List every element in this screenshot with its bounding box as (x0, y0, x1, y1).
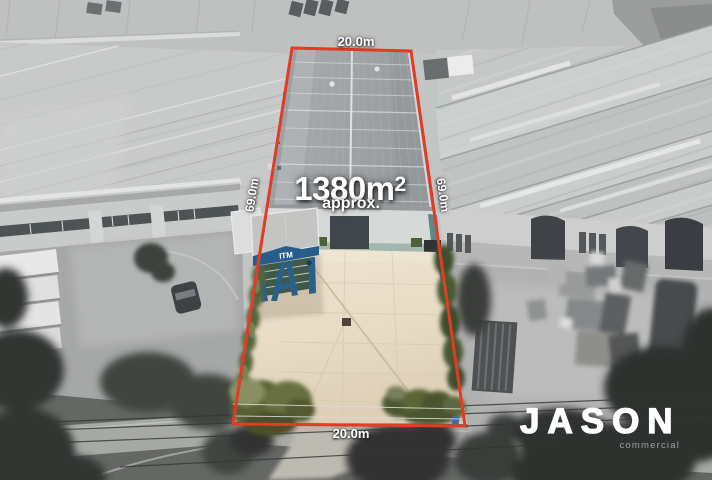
svg-text:ITM: ITM (279, 250, 294, 260)
